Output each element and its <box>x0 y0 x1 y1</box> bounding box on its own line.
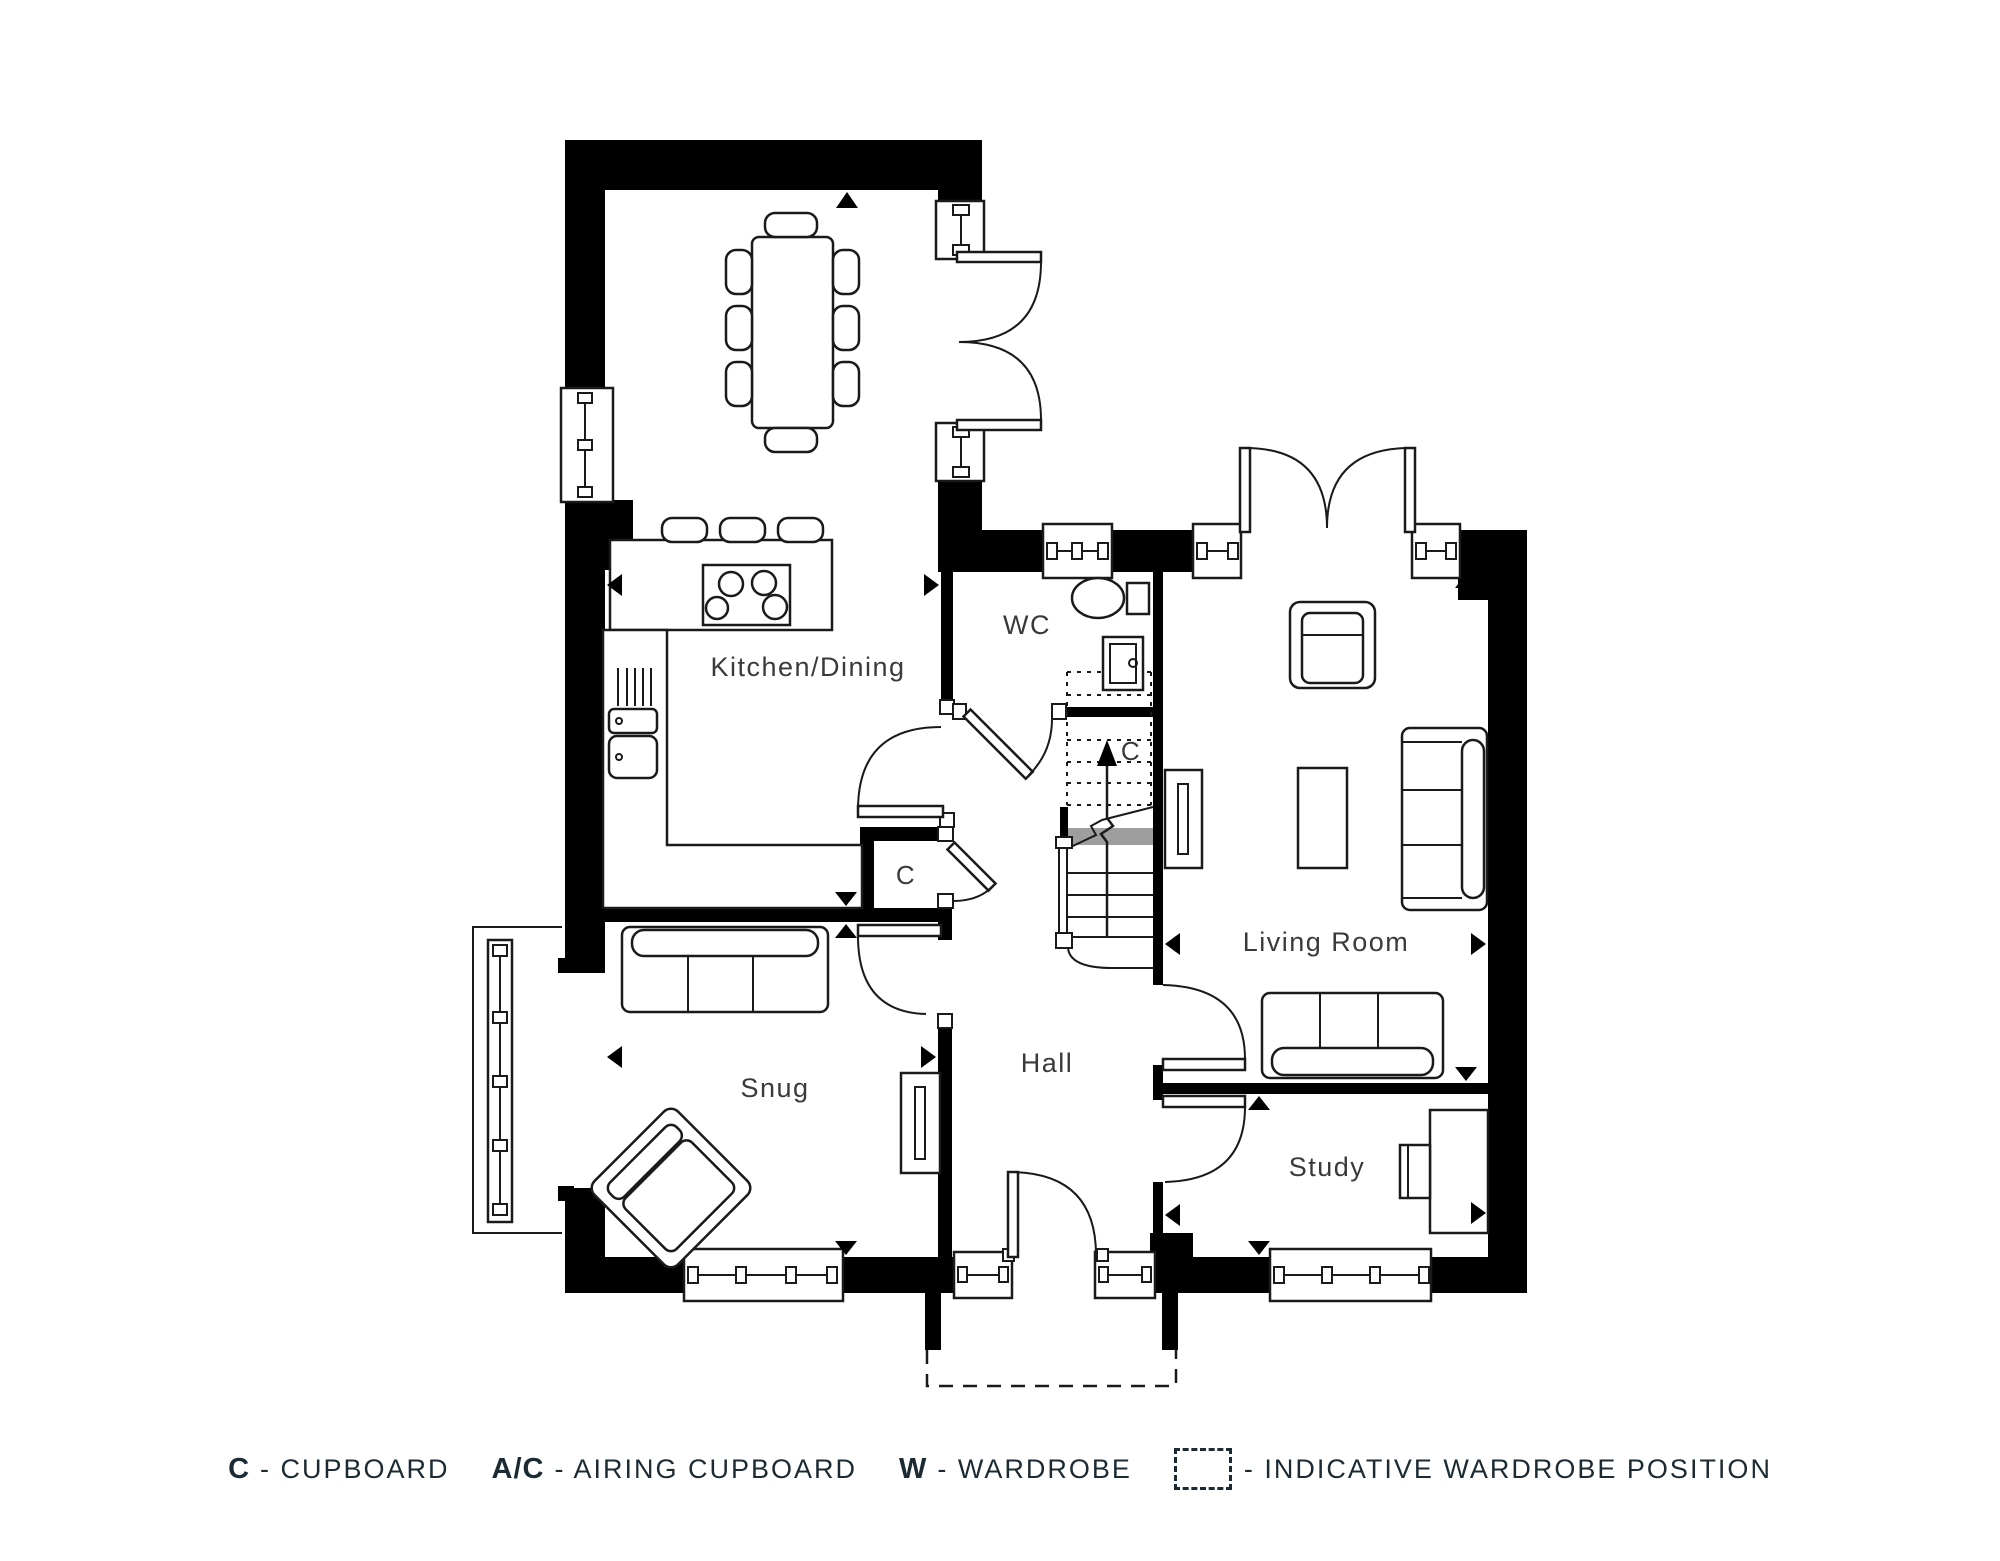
door-snug <box>858 925 941 1014</box>
label-snug: Snug <box>740 1073 809 1103</box>
window-kitchen-right-lower <box>936 423 984 481</box>
radiator-living <box>1165 770 1202 868</box>
porch-outline <box>927 1350 1176 1386</box>
living-room-furniture <box>1165 602 1487 1078</box>
marker-kitchen-right <box>924 574 939 596</box>
legend-item-airing-cupboard: A/C - AIRING CUPBOARD <box>492 1453 858 1486</box>
stair-treads <box>1068 873 1153 968</box>
marker-living-right <box>1471 933 1486 955</box>
label-kitchen: Kitchen/Dining <box>710 652 905 682</box>
label-study: Study <box>1289 1152 1366 1182</box>
window-kitchen-right-upper <box>936 201 984 259</box>
french-doors-kitchen <box>957 252 1041 430</box>
legend-desc: - CUPBOARD <box>260 1454 450 1485</box>
sofa-snug <box>622 927 828 1012</box>
basin <box>1103 637 1143 690</box>
door-kitchen-hall <box>858 727 943 817</box>
window-living-left <box>1193 524 1241 578</box>
legend: C - CUPBOARD A/C - AIRING CUPBOARD W - W… <box>0 1448 2000 1490</box>
legend-key: W <box>899 1453 927 1486</box>
label-living: Living Room <box>1243 927 1410 957</box>
desk-chair <box>1400 1145 1430 1198</box>
legend-item-wardrobe: W - WARDROBE <box>899 1453 1132 1486</box>
toilet <box>1072 578 1149 618</box>
door-jambs <box>938 700 1108 1261</box>
legend-key: C <box>228 1453 250 1486</box>
radiator-snug <box>901 1073 940 1173</box>
legend-key: A/C <box>492 1453 545 1486</box>
hob <box>703 565 790 625</box>
window-living-right <box>1412 524 1460 578</box>
legend-item-indicative-wardrobe: - INDICATIVE WARDROBE POSITION <box>1174 1448 1772 1490</box>
kitchen-fittings <box>603 213 862 908</box>
sofa-bottom <box>1262 993 1443 1078</box>
armchair-snug <box>588 1105 755 1272</box>
legend-desc: - AIRING CUPBOARD <box>554 1454 857 1485</box>
label-cupboard-kitchen: C <box>896 860 916 890</box>
label-cupboard-stairs: C <box>1121 736 1141 766</box>
wc-fittings <box>1072 578 1149 690</box>
door-living-room <box>1163 985 1245 1070</box>
window-wc <box>1043 524 1112 578</box>
dimension-markers <box>607 192 1486 1255</box>
window-snug-bottom <box>684 1249 843 1301</box>
marker-snug-left <box>607 1046 622 1068</box>
marker-study-top <box>1248 1096 1270 1110</box>
indicative-wardrobe-box-icon <box>1174 1448 1232 1490</box>
marker-snug-top <box>835 924 857 938</box>
bay-window-snug <box>473 927 562 1233</box>
marker-study-left <box>1165 1204 1180 1226</box>
label-hall: Hall <box>1021 1048 1074 1078</box>
armchair <box>1290 602 1375 688</box>
window-study-bottom <box>1270 1249 1431 1301</box>
marker-kitchen-top <box>836 192 858 208</box>
bar-stools <box>662 518 823 542</box>
marker-living-bottom <box>1455 1067 1477 1081</box>
stair-newel-bottom <box>1056 933 1072 948</box>
french-doors-living <box>1240 448 1415 532</box>
legend-item-cupboard: C - CUPBOARD <box>228 1453 449 1486</box>
door-front-entrance <box>1008 1172 1096 1257</box>
door-cupboard-kitchen <box>947 842 995 901</box>
stair-handrail <box>1059 848 1067 933</box>
marker-snug-right <box>921 1046 936 1068</box>
legend-desc: - INDICATIVE WARDROBE POSITION <box>1244 1454 1772 1485</box>
sofa-right <box>1402 728 1487 910</box>
window-kitchen-left <box>561 388 613 502</box>
marker-study-bottom <box>1248 1241 1270 1255</box>
dining-table <box>726 213 859 452</box>
legend-desc: - WARDROBE <box>937 1454 1132 1485</box>
floorplan-page: Kitchen/Dining WC Living Room Hall Snug … <box>0 0 2000 1561</box>
coffee-table <box>1298 768 1347 868</box>
marker-living-left <box>1165 933 1180 955</box>
door-study <box>1163 1096 1245 1182</box>
label-wc: WC <box>1003 610 1051 640</box>
sink-unit <box>609 709 657 778</box>
stair-newel-top <box>1056 837 1072 848</box>
door-wc <box>963 709 1052 778</box>
floorplan-drawing: Kitchen/Dining WC Living Room Hall Snug … <box>0 0 2000 1561</box>
